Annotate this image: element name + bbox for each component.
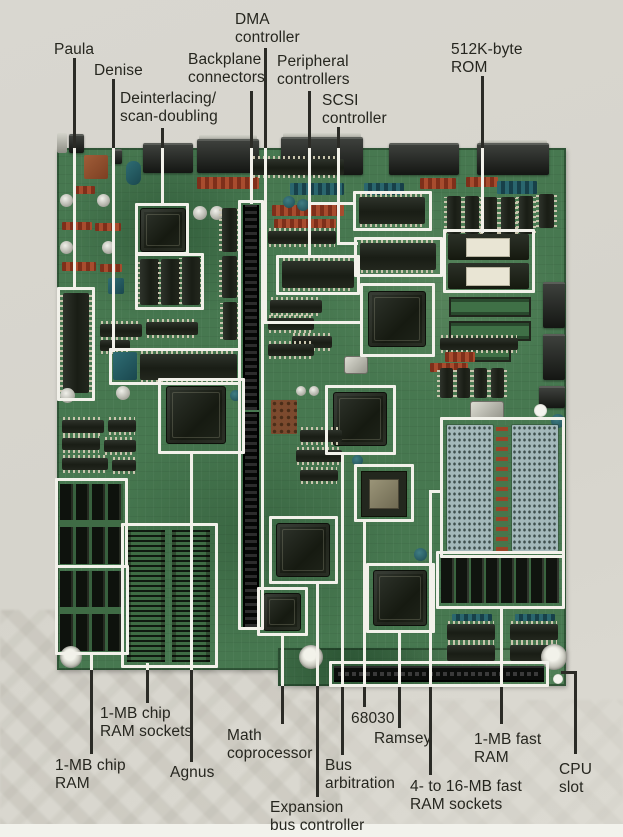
component-outline-scsi-controller — [354, 237, 443, 277]
component-outline-fast-ram-sockets — [440, 417, 565, 558]
callout-label-chip-ram: 1-MB chipRAM — [55, 757, 126, 793]
callout-line-peripheral-controllers — [308, 202, 356, 205]
callout-line-scsi-controller — [337, 148, 340, 245]
callout-label-ramsey: Ramsey — [374, 730, 431, 748]
callout-label-backplane-connectors: Backplaneconnectors — [188, 51, 265, 87]
callout-label-chip-ram-sockets: 1-MB chipRAM sockets — [100, 705, 192, 741]
callout-line-deinterlacing — [161, 148, 164, 206]
component-outline-deinterlacing — [135, 253, 204, 310]
callout-line-backplane-connectors — [250, 148, 253, 204]
callout-line-chip-ram — [90, 652, 93, 670]
component-outline-chip-ram — [55, 565, 129, 655]
component-outline-ramsey — [366, 563, 435, 633]
component-outline-rom — [443, 229, 535, 293]
component-outline-chip-ram — [55, 478, 128, 568]
callout-label-math-coprocessor: Mathcoprocessor — [227, 727, 313, 763]
component-outline-peripheral-controllers — [353, 191, 432, 231]
callout-line-denise — [112, 148, 115, 352]
component-outline-dma-controller — [360, 283, 435, 357]
component-outline-fast-ram — [436, 551, 565, 609]
component-outline-cpu-slot — [329, 661, 549, 687]
callout-line-ramsey — [398, 686, 401, 728]
callout-line-denise — [112, 79, 115, 150]
motherboard-annotated-photo: PaulaDeniseDeinterlacing/scan-doublingBa… — [0, 0, 623, 837]
annotation-layer: PaulaDeniseDeinterlacing/scan-doublingBa… — [0, 0, 623, 837]
component-outline-math-coprocessor — [257, 587, 308, 636]
callout-line-backplane-connectors — [250, 91, 253, 150]
callout-line-rom — [481, 76, 484, 150]
callout-line-dma-controller — [264, 48, 267, 150]
callout-label-agnus: Agnus — [170, 764, 214, 782]
component-outline-expansion-bus-controller — [269, 516, 338, 584]
callout-line-agnus — [190, 670, 193, 762]
callout-label-deinterlacing: Deinterlacing/scan-doubling — [120, 90, 218, 126]
callout-label-rom: 512K-byteROM — [451, 41, 523, 77]
callout-line-fast-ram-sockets — [429, 686, 432, 775]
callout-line-bus-arbitration — [341, 686, 344, 755]
callout-line-scsi-controller — [337, 242, 358, 245]
callout-line-expansion-bus-controller — [316, 582, 319, 686]
component-outline-chip-ram-sockets — [121, 523, 218, 668]
callout-label-fast-ram-sockets: 4- to 16-MB fastRAM sockets — [410, 778, 522, 814]
callout-line-rom — [481, 148, 484, 233]
callout-line-deinterlacing — [161, 128, 164, 150]
callout-line-cpu-slot — [574, 671, 577, 754]
callout-label-expansion-bus-controller: Expansionbus controller — [270, 799, 364, 835]
callout-line-agnus — [190, 452, 193, 670]
component-outline-paula — [57, 287, 95, 401]
callout-line-dma-controller — [264, 148, 267, 324]
callout-line-expansion-bus-controller — [316, 686, 319, 797]
callout-label-cpu-68030: 68030 — [351, 710, 395, 728]
callout-line-chip-ram-sockets — [146, 670, 149, 703]
callout-label-dma-controller: DMAcontroller — [235, 11, 300, 47]
callout-line-fast-ram — [500, 686, 503, 724]
callout-line-peripheral-controllers — [308, 91, 311, 150]
callout-label-peripheral-controllers: Peripheralcontrollers — [277, 53, 350, 89]
callout-line-paula — [73, 148, 76, 290]
callout-line-chip-ram — [90, 670, 93, 754]
component-outline-bus-arbitration — [325, 385, 396, 455]
callout-line-bus-arbitration — [341, 453, 344, 686]
callout-label-fast-ram: 1-MB fastRAM — [474, 731, 541, 767]
callout-label-cpu-slot: CPUslot — [559, 761, 592, 797]
callout-line-chip-ram-sockets — [146, 663, 149, 670]
component-outline-peripheral-controllers — [276, 255, 360, 295]
callout-line-cpu-68030 — [363, 686, 366, 707]
callout-label-bus-arbitration: Busarbitration — [325, 757, 395, 793]
callout-label-denise: Denise — [94, 62, 143, 80]
component-outline-deinterlacing — [135, 203, 189, 255]
component-outline-cpu-68030 — [354, 464, 414, 522]
callout-line-paula — [73, 58, 76, 150]
component-outline-agnus — [158, 378, 245, 454]
callout-line-fast-ram-sockets — [429, 490, 432, 686]
callout-line-math-coprocessor — [281, 686, 284, 724]
callout-line-scsi-controller — [337, 127, 340, 150]
callout-label-scsi-controller: SCSIcontroller — [322, 92, 387, 128]
callout-line-math-coprocessor — [281, 634, 284, 686]
callout-label-paula: Paula — [54, 41, 94, 59]
callout-line-dma-controller — [264, 321, 363, 324]
